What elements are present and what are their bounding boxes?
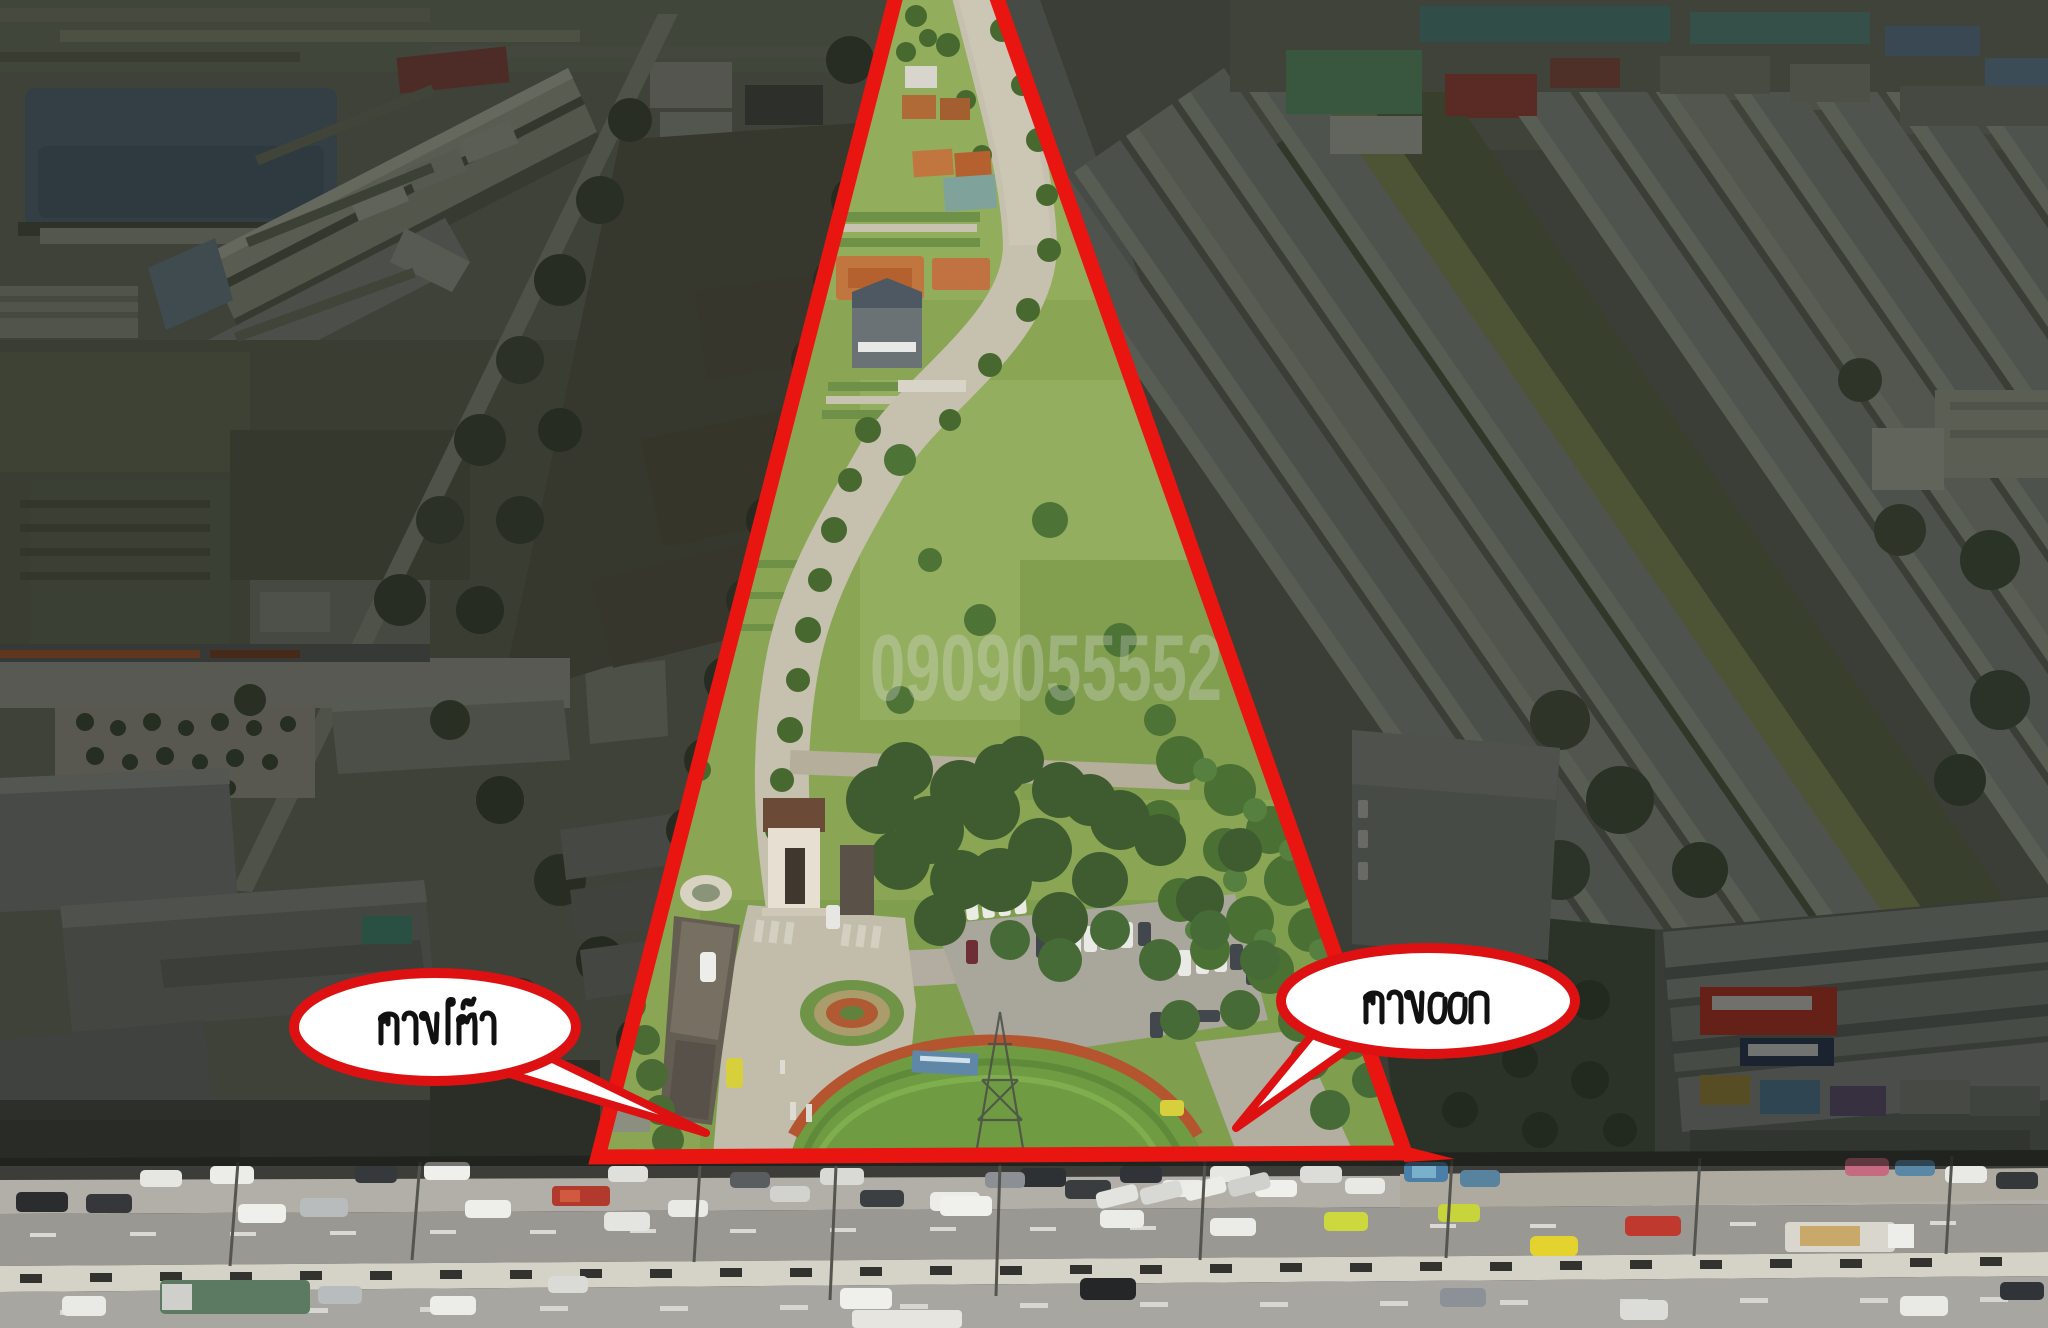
svg-text:0909055552: 0909055552 (870, 615, 1222, 720)
